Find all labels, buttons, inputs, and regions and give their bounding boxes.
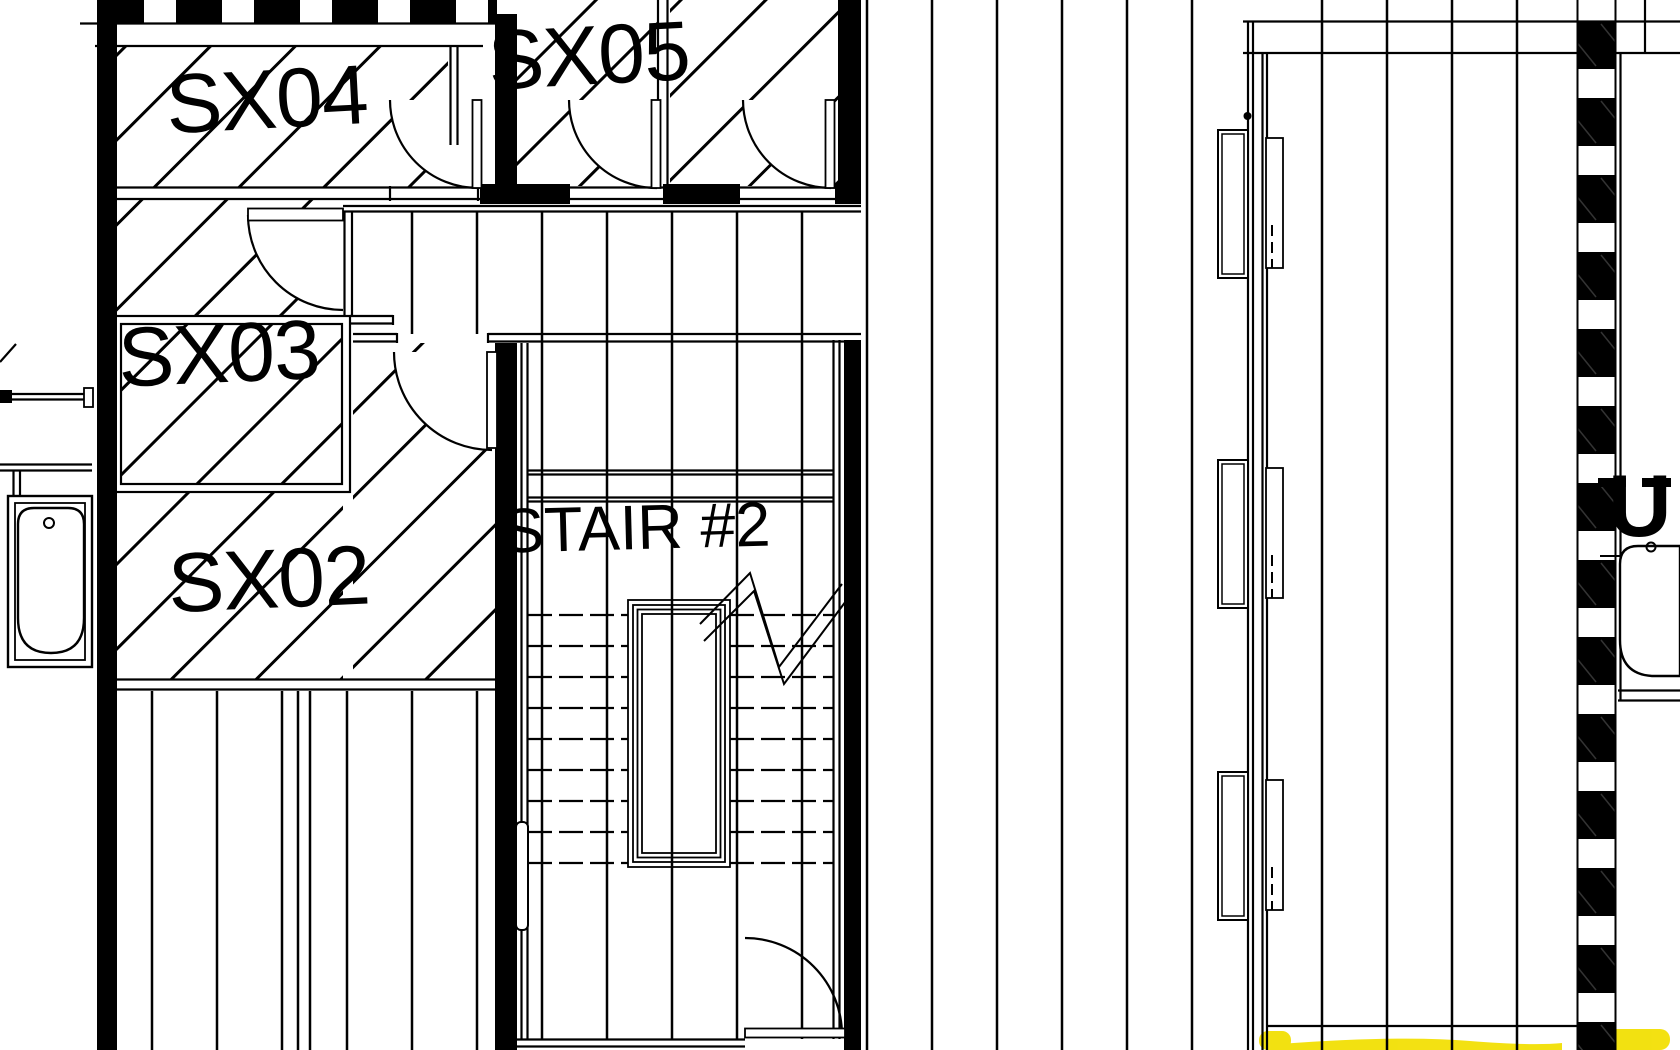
top-checkered-wall <box>80 0 497 23</box>
door-leaf <box>826 100 835 188</box>
stair-west-wall <box>495 343 517 1050</box>
left-bathroom <box>8 496 92 667</box>
door-leaf <box>487 352 497 448</box>
band-sill-2 <box>663 184 740 204</box>
sx05-east-wall <box>838 0 861 194</box>
label-edge-partial-text: U <box>1608 456 1672 555</box>
door-leaf <box>745 1029 845 1038</box>
floor-plan-drawing: SX04 SX05 SX03 SX02 STAIR #2 U <box>0 0 1680 1050</box>
label-sx05: SX05 <box>486 3 692 107</box>
stair-handrail <box>516 822 528 930</box>
window-frame-bracket <box>1266 780 1283 910</box>
band-sill-3 <box>835 184 861 204</box>
left-wall-jamb-tick <box>84 388 93 407</box>
stair-east-wall <box>844 340 861 1050</box>
door-leaf <box>652 100 661 188</box>
door-leaf <box>473 100 482 188</box>
window-frame-bracket <box>1266 138 1283 268</box>
window-mark-dot <box>1244 112 1252 120</box>
door-leaf <box>248 209 343 221</box>
label-sx04: SX04 <box>164 47 370 151</box>
west-party-wall <box>97 0 117 1050</box>
label-sx03: SX03 <box>116 302 321 405</box>
label-sx02: SX02 <box>166 527 371 630</box>
window-frame-bracket <box>1266 468 1283 598</box>
bathtub <box>1620 546 1680 676</box>
band-sill-1 <box>480 184 570 204</box>
left-edge-wall-node <box>0 390 12 403</box>
label-stair-2: STAIR #2 <box>501 490 771 567</box>
bathtub <box>18 508 84 653</box>
floor-plan-canvas: SX04 SX05 SX03 SX02 STAIR #2 U <box>0 0 1680 1050</box>
